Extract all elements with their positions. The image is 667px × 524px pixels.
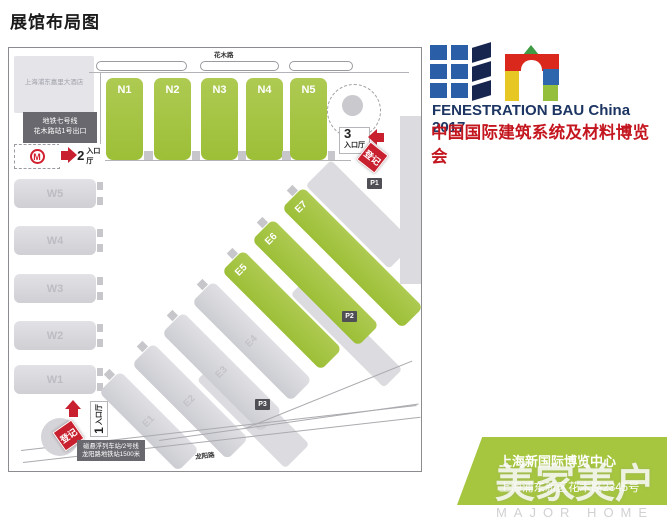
boundary-line (89, 72, 409, 73)
hall-w5: W5 (14, 179, 96, 208)
watermark-en: MAJOR HOME (484, 505, 666, 520)
metro-line7-badge: 地铁七号线 花木路站1号出口 (23, 112, 97, 143)
hall-n4: N4 (246, 78, 283, 160)
hall-w3: W3 (14, 274, 96, 303)
venue-info-box: 上海新国际博览中心 上海浦东新区花木路2345号 (457, 437, 667, 505)
bau-logo (505, 45, 559, 103)
maglev-badge: 磁悬浮列车站/2号线 龙阳路地铁站1500米 (77, 440, 145, 461)
entrance-2: 2 入口厅 (59, 144, 105, 167)
road-label-huamu: 花木路 (214, 49, 234, 59)
entrance-arrow-icon (61, 147, 75, 164)
entrance-1: 1 入口厅 (90, 401, 108, 437)
venue-name: 上海新国际博览中心 (499, 451, 667, 470)
boundary-line (100, 72, 101, 146)
parking-p3: P3 (255, 399, 270, 410)
dropoff-island (342, 95, 363, 116)
lane-pill (200, 61, 279, 71)
building-strip (400, 116, 421, 284)
shanghai-metro-logo: M (30, 149, 45, 164)
venue-map: 上海浦东嘉里大酒店 花木路 N1 N2 N3 N4 N5 W5 W4 W3 W2… (8, 47, 422, 472)
expo-title-cn: 中国国际建筑系统及材料博览会 (431, 119, 666, 167)
hall-n5: N5 (290, 78, 327, 160)
branding-block: FENESTRATION BAU China 2017 中国国际建筑系统及材料博… (428, 45, 666, 145)
hall-n2: N2 (154, 78, 191, 160)
fenestration-logo-col (472, 45, 491, 98)
hall-w1: W1 (14, 365, 96, 394)
hall-w2: W2 (14, 321, 96, 350)
metro-station-box: M (14, 144, 60, 169)
fenestration-logo-col (430, 45, 447, 98)
hotel-block: 上海浦东嘉里大酒店 (14, 56, 94, 113)
hall-n3: N3 (201, 78, 238, 160)
hall-n1: N1 (106, 78, 143, 160)
page: 展馆布局图 上海浦东嘉里大酒店 花木路 N1 N2 N3 N4 N5 W5 W4… (0, 0, 667, 524)
parking-p1: P1 (367, 178, 382, 189)
fenestration-logo-col (451, 45, 468, 98)
hall-w4: W4 (14, 226, 96, 255)
lane-pill (96, 61, 187, 71)
venue-address: 上海浦东新区花木路2345号 (499, 479, 667, 495)
entrance-arrow-icon (65, 400, 82, 417)
boundary-line (99, 160, 351, 161)
page-title: 展馆布局图 (10, 8, 100, 33)
road-label-longyang: 龙阳路 (194, 449, 215, 461)
parking-p2: P2 (342, 311, 357, 322)
lane-pill (289, 61, 353, 71)
